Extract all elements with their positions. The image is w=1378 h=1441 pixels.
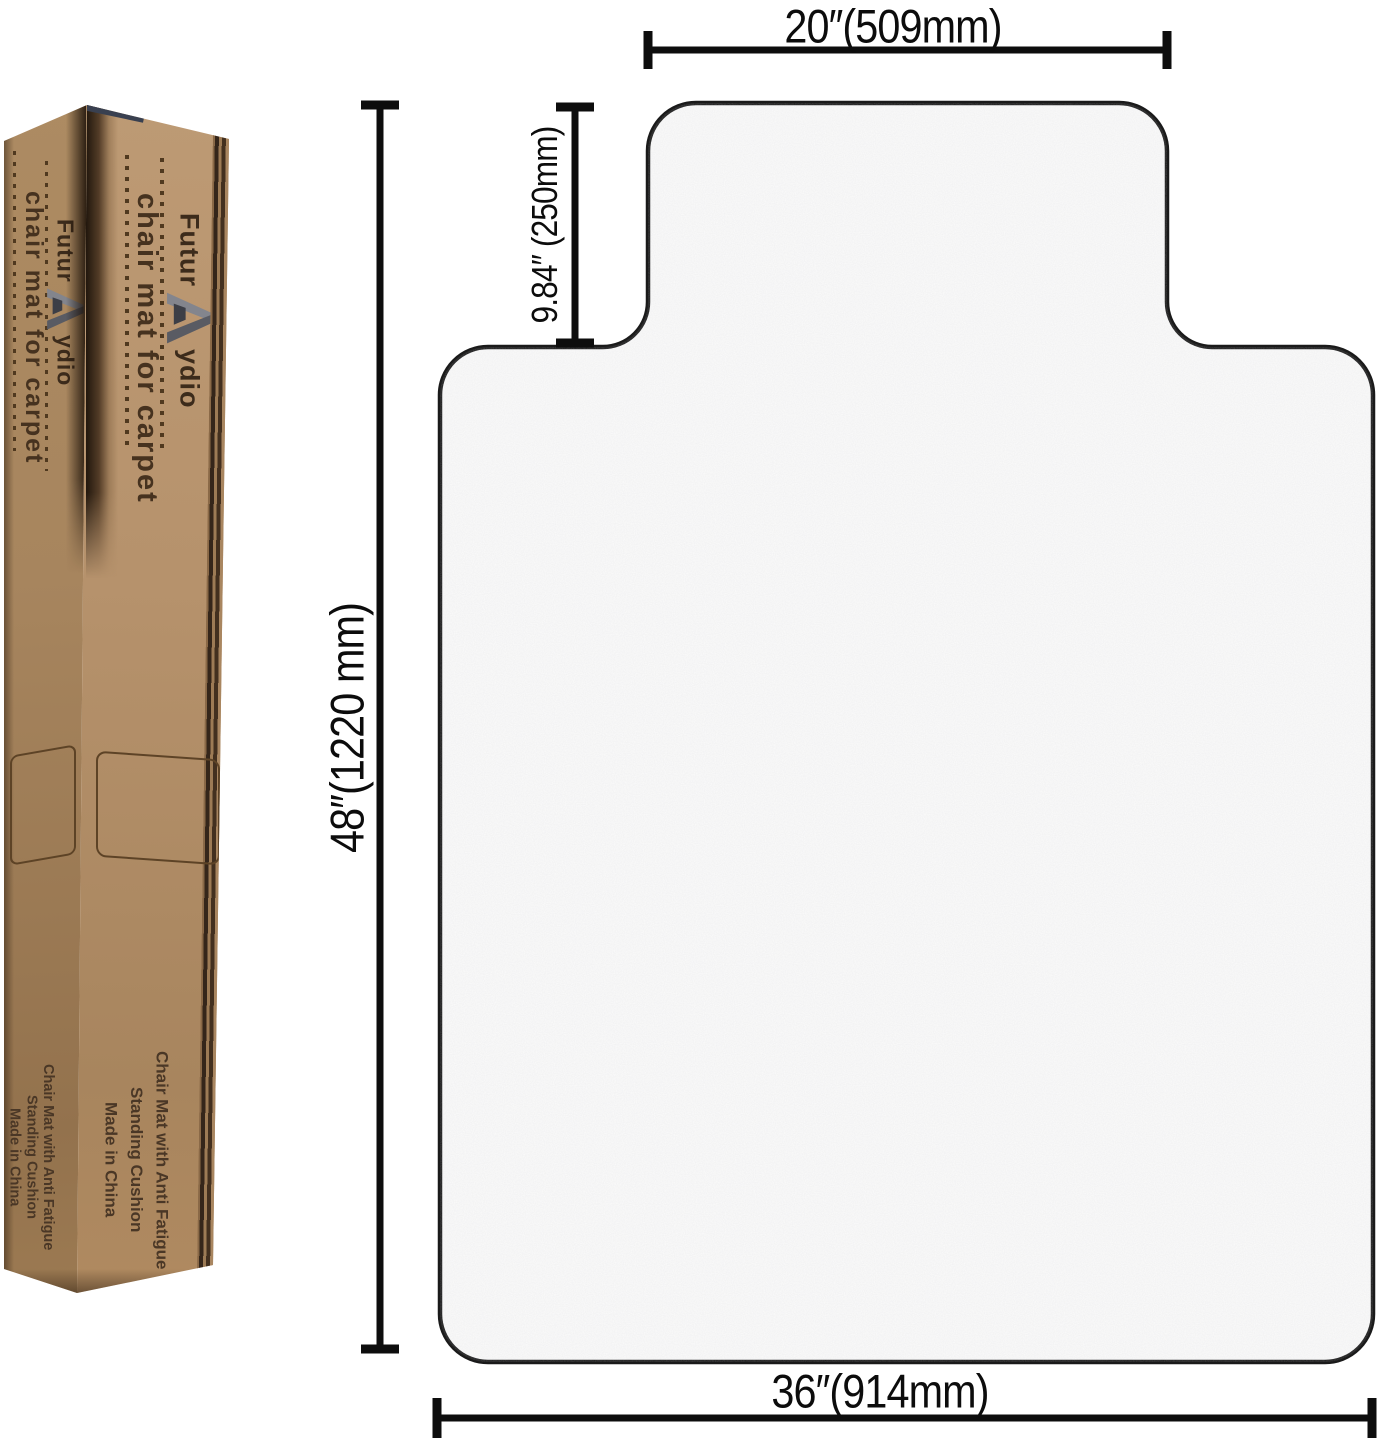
shipping-box: chair mat for carpet Futur ydio Chair Ma… [2,103,238,1295]
product-diagram-image: 20″(509mm) 9.84″ (250mm) 48″(1220 mm) 36… [0,0,1378,1441]
box-bottom-shadow [72,1269,238,1295]
box-label-line: Standing Cushion [124,1035,150,1285]
box-right-face: chair mat for carpet Futur ydio Chair Ma… [72,103,238,1295]
box-label-line: Made in China [98,1035,124,1285]
product-text: chair mat for carpet [130,193,163,504]
box-corner-shadow [66,103,86,573]
box-label-line: Chair Mat with Anti Fatigue [149,1035,175,1285]
box-bottom-shadow [2,1269,90,1295]
box-label-line: Made in China [6,1031,23,1283]
box-bottom-label: Chair Mat with Anti Fatigue Standing Cus… [98,1035,175,1285]
brand-lockup: Futur ydio [166,213,212,409]
label-frame [10,744,76,866]
brand-logo-icon [162,291,216,345]
dotted-line [125,155,129,445]
box-label-line: Chair Mat with Anti Fatigue [39,1031,56,1283]
mat-texture-overlay [440,103,1373,1362]
box-bottom-label: Chair Mat with Anti Fatigue Standing Cus… [6,1031,56,1283]
box-corner-stripe [86,103,118,578]
dim-label-length: 48″(1220 mm) [324,603,371,853]
box-label-line: Standing Cushion [23,1031,40,1283]
brand-text-suffix: ydio [174,349,205,409]
label-frame [96,751,220,866]
dotted-line [13,151,16,451]
dim-label-width: 36″(914mm) [771,1368,988,1415]
box-left-face: chair mat for carpet Futur ydio Chair Ma… [2,103,90,1295]
dim-label-lip-width: 20″(509mm) [784,3,1001,50]
brand-text-prefix: Futur [174,213,205,287]
dim-label-lip-depth: 9.84″ (250mm) [527,127,563,324]
